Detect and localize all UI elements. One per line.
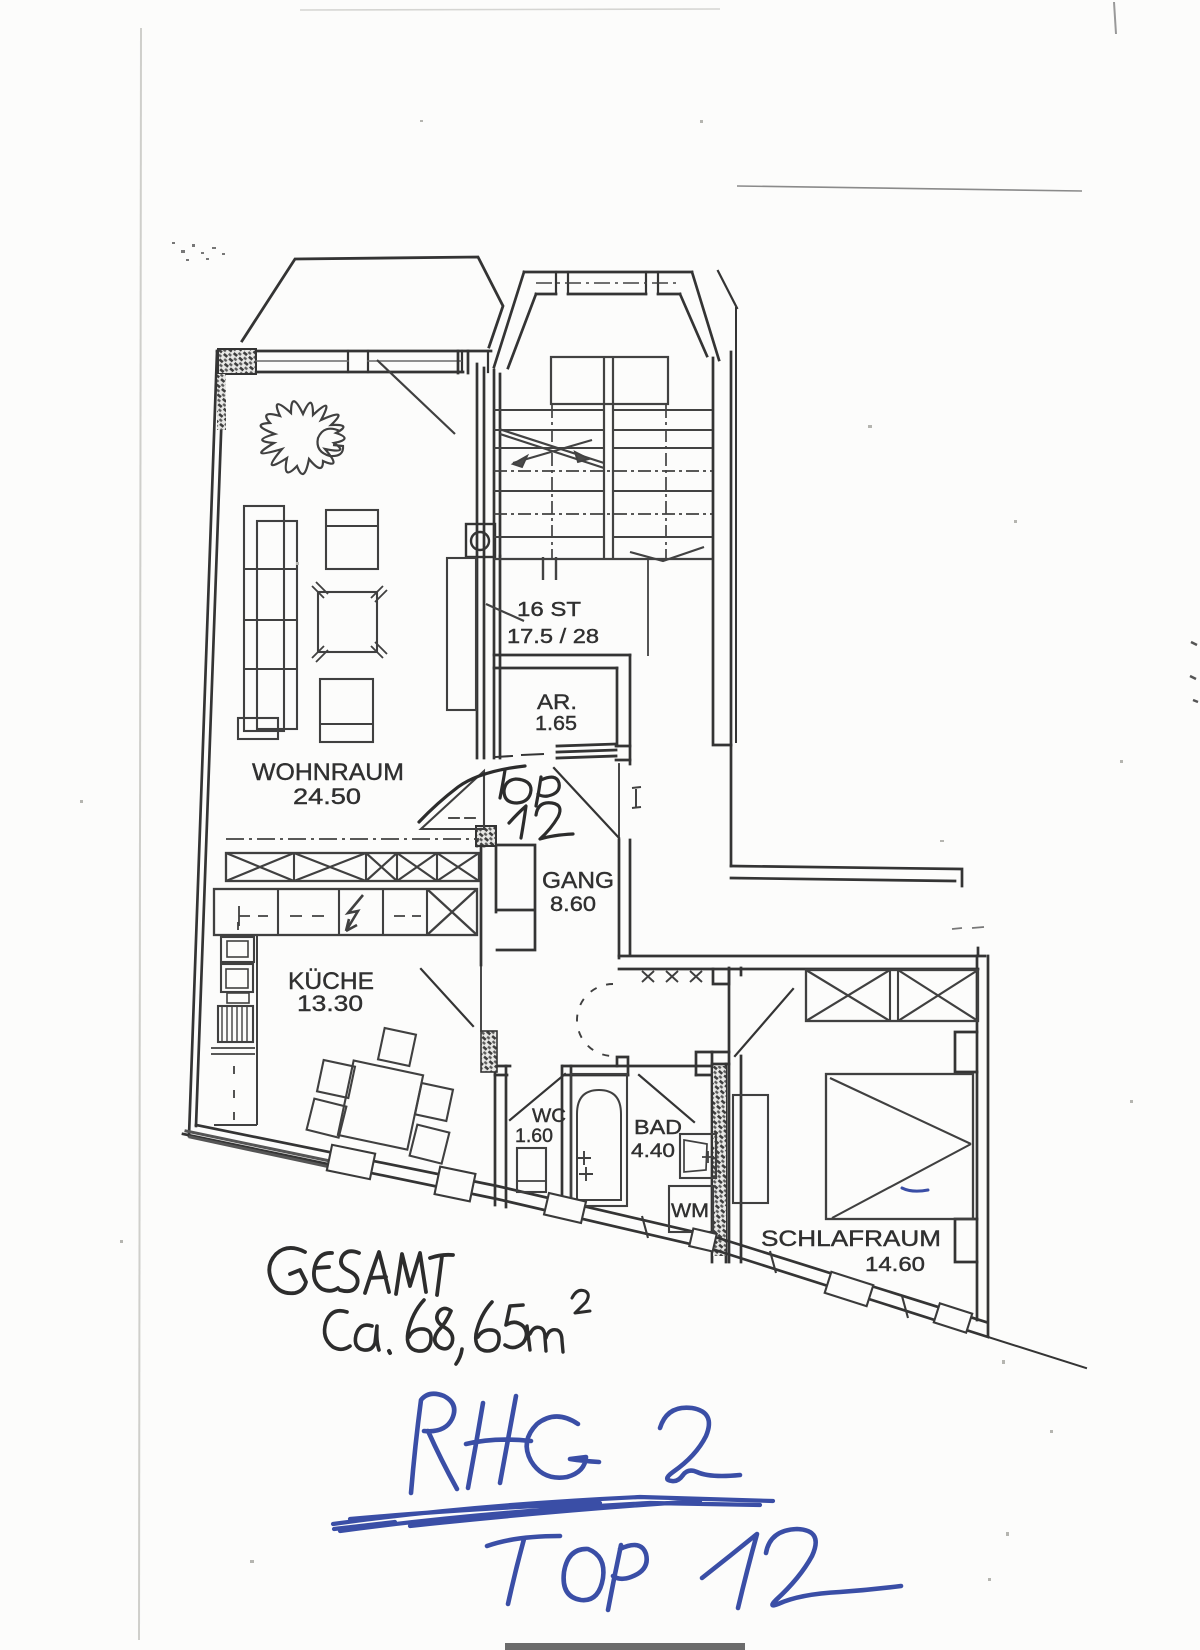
- svg-text:16 ST: 16 ST: [517, 599, 581, 621]
- svg-text:24.50: 24.50: [293, 784, 361, 809]
- svg-text:SCHLAFRAUM: SCHLAFRAUM: [761, 1226, 941, 1251]
- svg-text:WC: WC: [532, 1106, 566, 1127]
- svg-text:WM: WM: [671, 1201, 709, 1222]
- svg-text:14.60: 14.60: [865, 1254, 925, 1276]
- svg-text:13.30: 13.30: [297, 991, 363, 1016]
- svg-text:8.60: 8.60: [550, 893, 596, 916]
- svg-text:BAD: BAD: [634, 1117, 682, 1139]
- svg-text:1.65: 1.65: [535, 713, 577, 735]
- svg-text:4.40: 4.40: [631, 1141, 675, 1162]
- svg-text:WOHNRAUM: WOHNRAUM: [252, 759, 404, 786]
- svg-text:1.60: 1.60: [515, 1126, 553, 1147]
- svg-text:17.5 / 28: 17.5 / 28: [507, 626, 599, 648]
- svg-text:GANG: GANG: [542, 867, 614, 893]
- svg-text:AR.: AR.: [537, 691, 577, 714]
